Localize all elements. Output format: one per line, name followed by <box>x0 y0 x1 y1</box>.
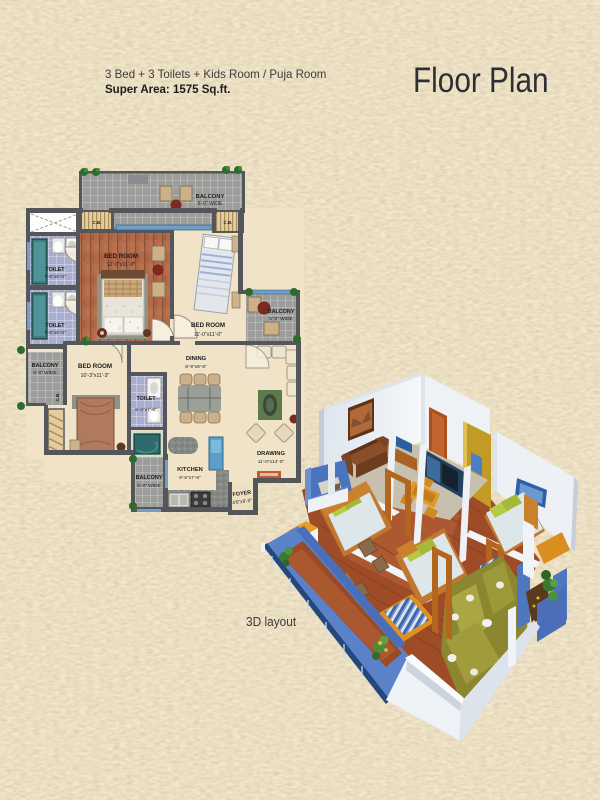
svg-text:5'-0" WIDE: 5'-0" WIDE <box>33 370 56 376</box>
svg-text:BED ROOM: BED ROOM <box>78 363 112 370</box>
svg-text:TOILET: TOILET <box>45 323 65 329</box>
svg-text:BALCONY: BALCONY <box>32 363 59 369</box>
svg-text:C.B.: C.B. <box>224 220 233 225</box>
svg-text:DRAWING: DRAWING <box>257 451 286 457</box>
svg-text:TOILET: TOILET <box>136 396 156 402</box>
svg-text:DINING: DINING <box>186 356 207 362</box>
svg-text:5'-0" WIDE: 5'-0" WIDE <box>137 483 160 489</box>
svg-text:BALCONY: BALCONY <box>268 309 295 315</box>
svg-text:BED ROOM: BED ROOM <box>191 322 225 329</box>
svg-text:5'-0"x7'-6": 5'-0"x7'-6" <box>135 407 157 413</box>
svg-text:7'-6"x5'-0": 7'-6"x5'-0" <box>44 274 66 280</box>
svg-text:6'-0" WIDE: 6'-0" WIDE <box>198 201 223 207</box>
svg-text:TOILET: TOILET <box>45 267 65 273</box>
svg-text:8'-9"x8'-6": 8'-9"x8'-6" <box>185 364 207 370</box>
svg-text:C.B.: C.B. <box>93 220 102 225</box>
svg-text:8'-6"x7'-6": 8'-6"x7'-6" <box>179 475 201 481</box>
svg-text:BED ROOM: BED ROOM <box>104 253 138 260</box>
svg-text:BALCONY: BALCONY <box>196 194 225 200</box>
svg-text:BALCONY: BALCONY <box>136 475 163 481</box>
svg-text:5'-0" WIDE: 5'-0" WIDE <box>269 316 292 322</box>
svg-text:11'-0"x14'-0": 11'-0"x14'-0" <box>258 459 285 465</box>
svg-text:11'-0"x11'-0": 11'-0"x11'-0" <box>194 332 222 338</box>
svg-text:KITCHEN: KITCHEN <box>177 467 203 473</box>
svg-text:12'-0"x11'-0": 12'-0"x11'-0" <box>107 262 136 268</box>
svg-text:7'-6"x5'-0": 7'-6"x5'-0" <box>44 330 66 336</box>
svg-text:10'-3"x11'-3": 10'-3"x11'-3" <box>81 373 110 379</box>
svg-text:C.B.: C.B. <box>55 393 60 402</box>
